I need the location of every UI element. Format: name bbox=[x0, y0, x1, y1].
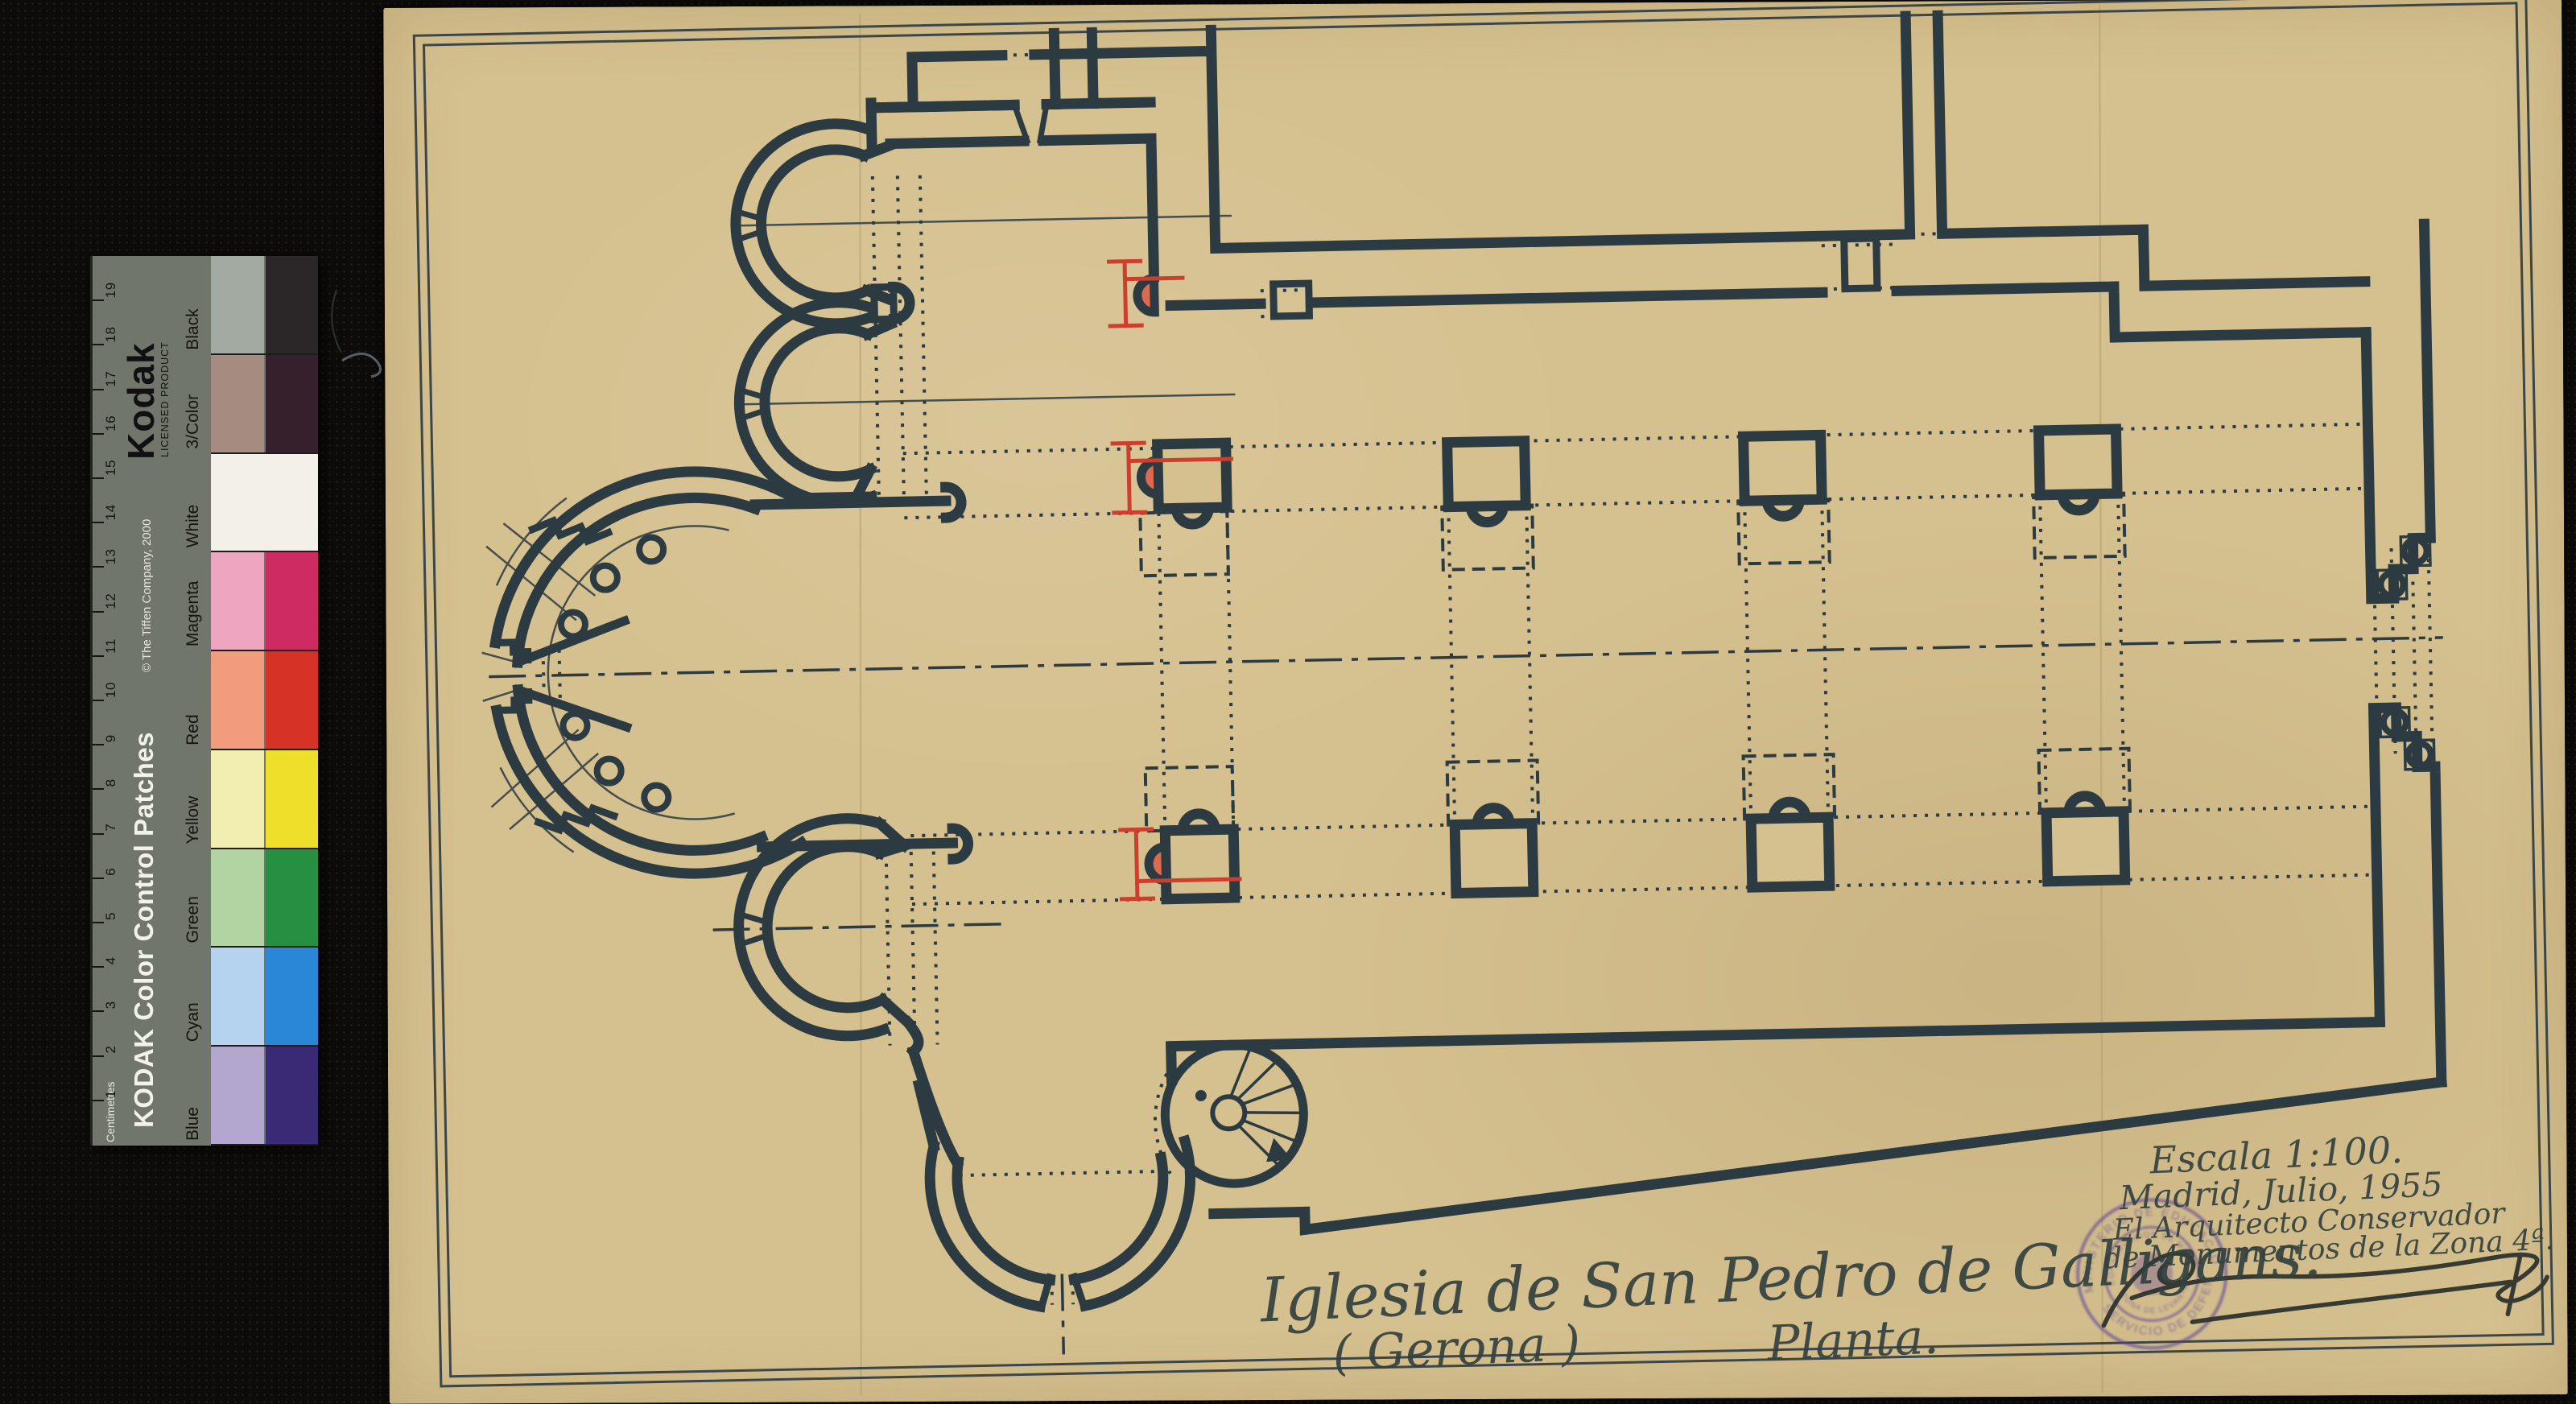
big-south-chapel bbox=[919, 1080, 1193, 1309]
patch-Cyan bbox=[211, 948, 318, 1047]
patch-swatch-dark bbox=[266, 552, 318, 650]
ruler-tick bbox=[93, 433, 104, 435]
patch-label-3/Color: 3/Color bbox=[184, 394, 203, 449]
ruler-tick bbox=[93, 877, 104, 879]
patch-swatch-light bbox=[211, 750, 264, 848]
ruler-number: 14 bbox=[103, 504, 119, 520]
patch-Blue bbox=[211, 1047, 318, 1146]
ruler-tick bbox=[93, 833, 104, 835]
ruler-tick bbox=[93, 344, 104, 345]
patch-Black bbox=[211, 256, 318, 355]
patch-label-Green: Green bbox=[184, 896, 203, 943]
nave-south-wall bbox=[1171, 1022, 2381, 1080]
ruler-number: 15 bbox=[103, 460, 119, 476]
ruler-tick bbox=[93, 522, 104, 523]
patch-swatch-full bbox=[211, 454, 318, 551]
patch-Red bbox=[211, 651, 318, 750]
ruler-number: 1 bbox=[103, 1090, 119, 1098]
patch-swatch-light bbox=[211, 849, 264, 947]
ruler-number: 8 bbox=[103, 778, 119, 787]
patch-swatch-light bbox=[211, 552, 264, 650]
drawing-sheet: MINISTERIO DE EDUCACION SERVICIO DE DEFE… bbox=[383, 0, 2568, 1404]
plan-subtitle-location: ( Gerona ) bbox=[1331, 1315, 1581, 1382]
highlighted-responds bbox=[1107, 259, 1242, 899]
ruler-number: 5 bbox=[103, 912, 119, 920]
ruler-tick bbox=[93, 566, 104, 568]
ruler-number: 3 bbox=[103, 1001, 119, 1009]
ruler-number: 11 bbox=[103, 638, 119, 654]
ruler-tick bbox=[93, 389, 104, 390]
ruler-tick bbox=[93, 966, 104, 968]
red-dimension-marks bbox=[1107, 259, 1242, 899]
patch-swatch-dark bbox=[266, 256, 318, 353]
patch-Magenta bbox=[211, 552, 318, 651]
patch-label-Blue: Blue bbox=[184, 1107, 203, 1141]
ruler-tick bbox=[93, 922, 104, 923]
ruler-number: 7 bbox=[103, 824, 119, 832]
patch-swatch-dark bbox=[266, 849, 318, 947]
nave-piers bbox=[1158, 425, 2125, 899]
ruler-number: 2 bbox=[103, 1046, 119, 1054]
cloister-walls bbox=[911, 7, 2364, 311]
chancel-walls bbox=[755, 501, 952, 847]
patch-swatch-dark bbox=[266, 651, 318, 749]
ruler-number: 17 bbox=[103, 371, 119, 387]
licensed-product-label: LICENSED PRODUCT bbox=[159, 341, 171, 457]
paper-creases bbox=[855, 6, 2106, 1399]
ruler-tick bbox=[93, 788, 104, 790]
ruler-tick bbox=[93, 1010, 104, 1012]
ruler-tick bbox=[93, 299, 104, 301]
ruler-number: 6 bbox=[103, 868, 119, 876]
patch-swatch-dark bbox=[266, 355, 318, 452]
kodak-logo: Kodak bbox=[119, 342, 163, 460]
ruler-tick bbox=[93, 700, 104, 701]
patch-label-Magenta: Magenta bbox=[184, 580, 203, 646]
ruler-number: 4 bbox=[103, 956, 119, 964]
ruler-tick bbox=[93, 611, 104, 613]
patch-label-Red: Red bbox=[184, 714, 203, 745]
patch-Green bbox=[211, 849, 318, 948]
patch-swatch-light bbox=[211, 651, 264, 749]
patch-swatch-light bbox=[211, 256, 264, 353]
ruler-tick bbox=[93, 1055, 104, 1057]
patch-label-Cyan: Cyan bbox=[184, 1002, 203, 1042]
kodak-product-name: KODAK Color Control Patches bbox=[129, 732, 159, 1128]
pier-foundations-dashed bbox=[1140, 493, 2130, 831]
plan-label: Planta. bbox=[1766, 1308, 1940, 1372]
walls bbox=[483, 6, 2445, 1317]
patch-Yellow bbox=[211, 750, 318, 849]
tiffen-copyright: © The Tiffen Company, 2000 bbox=[140, 519, 154, 672]
ruler-number: 13 bbox=[103, 548, 119, 564]
ruler-number: 10 bbox=[103, 682, 119, 698]
centimetre-ruler: Centimetres 1234567891011121314151617181… bbox=[90, 256, 122, 1146]
patch-swatch-dark bbox=[266, 750, 318, 848]
patch-3/Color bbox=[211, 355, 318, 454]
ruler-number: 9 bbox=[103, 734, 119, 742]
patch-label-Yellow: Yellow bbox=[184, 796, 203, 844]
ruler-number: 12 bbox=[103, 593, 119, 609]
patch-swatch-dark bbox=[266, 1047, 318, 1144]
scanned-archive-photo: { "window": { "background": "#0d0c0a" },… bbox=[0, 0, 2576, 1404]
patch-swatch-dark bbox=[266, 948, 318, 1045]
patch-swatch-light bbox=[211, 1047, 264, 1144]
ruler-tick bbox=[93, 1100, 104, 1101]
kodak-color-control-strip: Centimetres 1234567891011121314151617181… bbox=[90, 256, 318, 1146]
ruler-number: 18 bbox=[103, 326, 119, 342]
ruler-number: 16 bbox=[103, 415, 119, 432]
ruler-tick bbox=[93, 655, 104, 657]
patch-White bbox=[211, 454, 318, 553]
east-facade bbox=[2363, 224, 2441, 1083]
spiral-staircase bbox=[1164, 1043, 1305, 1184]
patch-swatch-light bbox=[211, 355, 264, 452]
patch-label-White: White bbox=[184, 505, 203, 548]
ruler-tick bbox=[93, 744, 104, 745]
ruler-tick bbox=[93, 477, 104, 479]
patch-label-Black: Black bbox=[184, 308, 203, 349]
ruler-number: 19 bbox=[103, 282, 119, 298]
patch-swatch-light bbox=[211, 948, 264, 1045]
nave-north-wall bbox=[1170, 282, 2366, 357]
kodak-strip-body: Centimetres 1234567891011121314151617181… bbox=[90, 256, 318, 1146]
